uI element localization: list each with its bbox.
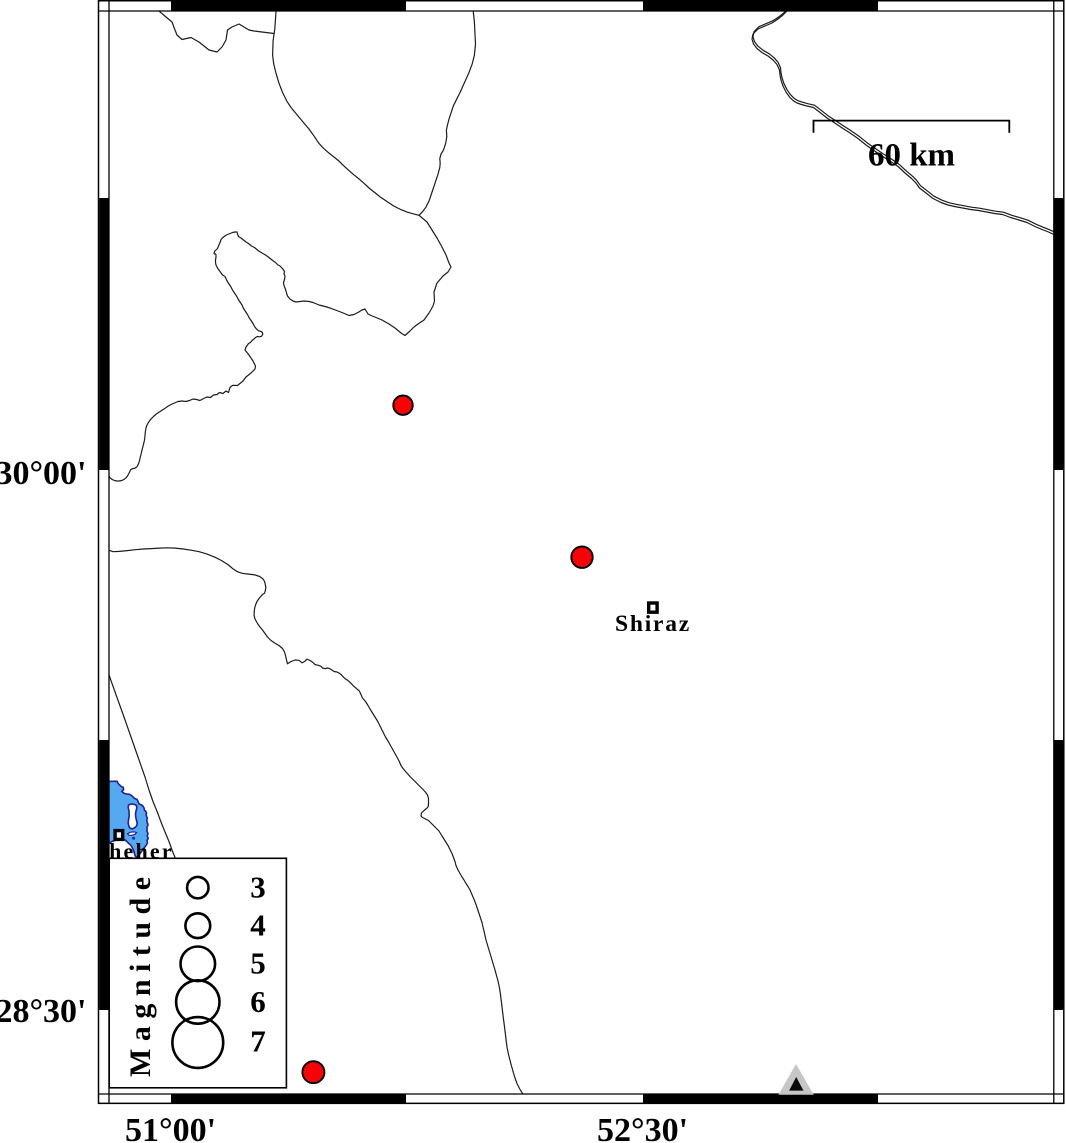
svg-text:7: 7 bbox=[250, 1023, 266, 1058]
svg-text:3: 3 bbox=[250, 870, 266, 905]
svg-text:51°00': 51°00' bbox=[125, 1112, 216, 1143]
svg-text:6: 6 bbox=[250, 984, 266, 1019]
svg-text:28°30': 28°30' bbox=[0, 993, 87, 1030]
svg-text:4: 4 bbox=[250, 908, 266, 943]
svg-text:60 km: 60 km bbox=[868, 138, 955, 174]
svg-text:Shiraz: Shiraz bbox=[615, 611, 691, 637]
svg-text:Magnitude: Magnitude bbox=[124, 869, 157, 1077]
svg-text:5: 5 bbox=[250, 946, 266, 981]
svg-text:30°00': 30°00' bbox=[0, 455, 87, 492]
svg-text:52°30': 52°30' bbox=[597, 1112, 688, 1143]
